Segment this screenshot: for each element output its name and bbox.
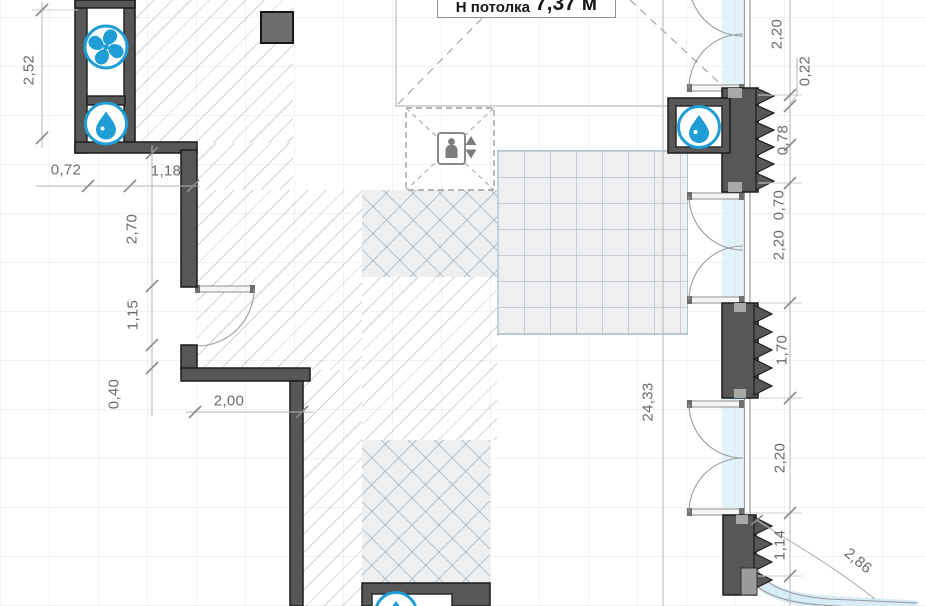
door-swings-right [687,0,744,516]
dim-label-right-022: 0,22 [797,56,814,86]
dim-label-right-door-top: 2,20 [769,19,786,49]
fan-icon [85,26,127,68]
dim-label-wall-upper: 2,70 [124,214,141,244]
dim-label-wall-stub: 0,40 [106,379,123,409]
floor-plan: 2,52 0,72 1,18 2,70 1,15 0,40 2,00 24,33… [0,0,926,606]
dim-label-right-114: 1,14 [772,530,789,560]
dim-label-left-door: 1,15 [125,300,142,330]
ceiling-height-callout: Н потолка 7,37 м [437,0,616,18]
walls [75,0,774,606]
elevator-icon [406,108,494,190]
door-swing-left [195,285,255,346]
dim-label-right-door-low: 2,20 [772,443,789,473]
dim-label-right-078: 0,78 [775,125,792,155]
dim-label-total-height: 24,33 [640,382,657,421]
dim-label-corridor-width: 1,18 [151,163,181,180]
ceiling-height-value: 7,37 м [535,0,597,16]
ceiling-height-label: Н потолка [456,0,530,16]
service-niches [87,8,722,606]
dimension-ticks [36,4,796,582]
dim-label-left-shaft: 2,52 [21,55,38,85]
dim-label-right-070: 0,70 [771,190,788,220]
water-drop-icon [86,103,127,144]
dim-label-right-170: 1,70 [774,335,791,365]
water-drop-icon [679,107,720,148]
dim-label-shaft-width: 0,72 [51,162,81,179]
dim-label-hall-width: 2,00 [214,393,244,410]
dim-label-right-door-mid: 2,20 [771,230,788,260]
